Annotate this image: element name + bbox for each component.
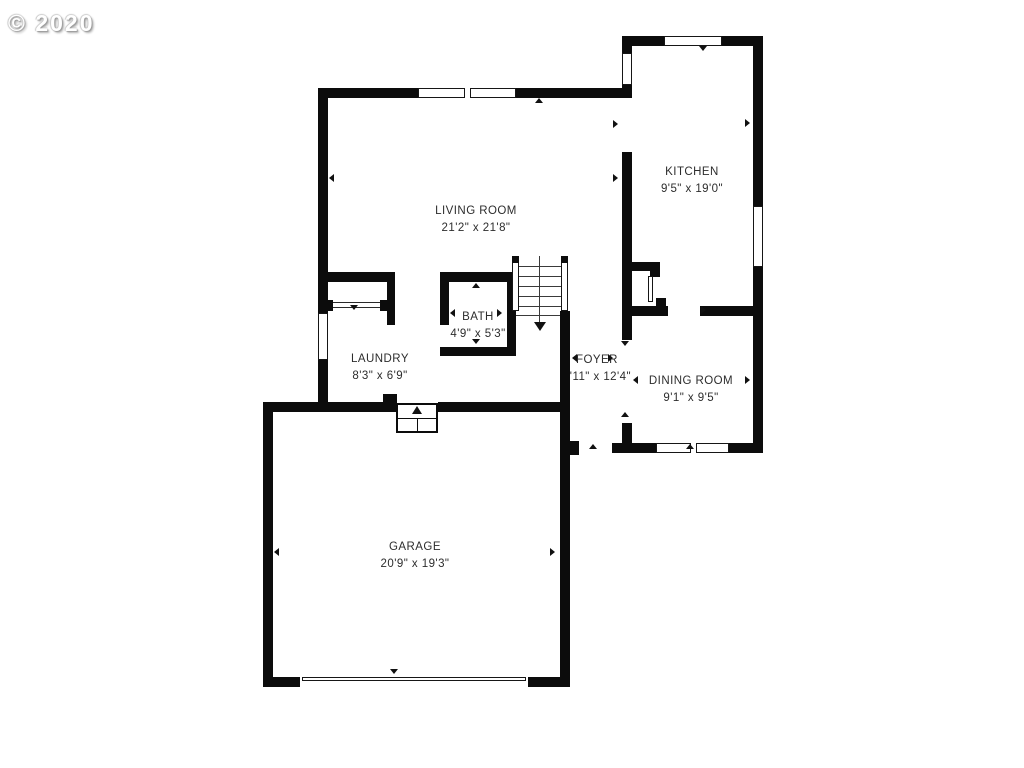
- room-label-garage: GARAGE 20'9" x 19'3": [381, 539, 450, 572]
- stair-tread: [519, 306, 561, 307]
- wall-bath-bottom: [440, 347, 516, 356]
- room-name: LIVING ROOM: [435, 203, 517, 220]
- dimension-tick: [613, 174, 618, 182]
- room-dimensions: 8'3" x 6'9": [351, 368, 409, 385]
- kitchen-top-window: [664, 36, 722, 46]
- garage-door-panel: [302, 677, 526, 681]
- dimension-tick: [472, 339, 480, 344]
- kitchen-left-window: [622, 53, 632, 85]
- dimension-tick: [390, 669, 398, 674]
- dimension-tick: [572, 354, 577, 362]
- wall-right-exterior-upper: [753, 44, 763, 206]
- garage-door: [300, 677, 528, 687]
- wall-living-bottom: [318, 272, 395, 282]
- dimension-tick: [589, 444, 597, 449]
- stair-rail-right: [561, 256, 568, 311]
- step-divider: [417, 418, 418, 431]
- wall-foyer-front: [612, 443, 656, 453]
- dimension-tick: [550, 548, 555, 556]
- room-name: KITCHEN: [661, 164, 723, 181]
- room-name: LAUNDRY: [351, 351, 409, 368]
- dimension-tick: [497, 309, 502, 317]
- copyright-watermark: © 2020: [8, 10, 95, 37]
- wall-right-exterior-lower: [753, 267, 763, 453]
- stair-rail-left: [512, 256, 519, 311]
- room-label-dining-room: DINING ROOM 9'1" x 9'5": [649, 373, 733, 406]
- dimension-tick: [621, 412, 629, 417]
- room-label-kitchen: KITCHEN 9'5" x 19'0": [661, 164, 723, 197]
- stairs-down-arrow-icon: [534, 322, 546, 331]
- wall-bath-left: [440, 282, 449, 325]
- wall-front-junction: [570, 441, 579, 455]
- dimension-tick: [745, 119, 750, 127]
- dimension-tick: [608, 354, 613, 362]
- steps-up-arrow-icon: [412, 406, 422, 414]
- stair-tread: [519, 296, 561, 297]
- floor-plan: © 2020: [0, 0, 1024, 768]
- stair-tread: [519, 266, 561, 267]
- wall-kitchen-dining-right: [700, 306, 755, 316]
- room-label-living-room: LIVING ROOM 21'2" x 21'8": [435, 203, 517, 236]
- dimension-tick: [535, 98, 543, 103]
- room-name: DINING ROOM: [649, 373, 733, 390]
- pantry-door-leaf: [648, 276, 653, 302]
- wall-hall-bottom-left: [263, 402, 397, 412]
- kitchen-right-window: [753, 206, 763, 267]
- stair-tread: [519, 286, 561, 287]
- dimension-tick: [686, 444, 694, 449]
- laundry-window: [318, 313, 328, 360]
- wall-kitchen-dining-left: [622, 306, 668, 316]
- dimension-tick: [350, 305, 358, 310]
- stair-rail-cap: [561, 256, 568, 263]
- dimension-tick: [701, 306, 706, 314]
- wall-living-top-right: [516, 88, 632, 98]
- wall-garage-left: [263, 410, 273, 687]
- dimension-tick: [699, 46, 707, 51]
- dimension-tick: [274, 548, 279, 556]
- wall-living-top-left: [318, 88, 418, 98]
- wall-bath-top: [440, 272, 516, 282]
- room-dimensions: 20'9" x 19'3": [381, 556, 450, 573]
- window-mullion: [464, 88, 471, 98]
- wall-pantry-jamb-bottom: [656, 298, 666, 307]
- room-name: GARAGE: [381, 539, 450, 556]
- wall-garage-foyer: [560, 311, 570, 687]
- wall-hall-bottom-right: [438, 402, 562, 412]
- room-dimensions: 9'1" x 9'5": [649, 390, 733, 407]
- room-dimensions: 21'2" x 21'8": [435, 220, 517, 237]
- stair-center-line: [539, 256, 540, 322]
- room-dimensions: 8'11" x 12'4": [563, 369, 631, 386]
- wall-garage-bottom-left: [263, 677, 300, 687]
- dimension-tick: [745, 376, 750, 384]
- wall-closet-jamb-right: [380, 300, 394, 311]
- living-room-window: [418, 88, 516, 98]
- dimension-tick: [633, 376, 638, 384]
- dimension-tick: [329, 174, 334, 182]
- stair-tread: [516, 315, 560, 316]
- room-dimensions: 9'5" x 19'0": [661, 181, 723, 198]
- dimension-tick: [472, 283, 480, 288]
- dimension-tick: [621, 341, 629, 346]
- wall-closet-jamb-left: [320, 300, 333, 311]
- stair-rail-cap: [512, 256, 519, 263]
- dimension-tick: [450, 309, 455, 317]
- room-label-laundry: LAUNDRY 8'3" x 6'9": [351, 351, 409, 384]
- wall-dining-bottom-right: [729, 443, 763, 453]
- stair-tread: [519, 276, 561, 277]
- dimension-tick: [613, 120, 618, 128]
